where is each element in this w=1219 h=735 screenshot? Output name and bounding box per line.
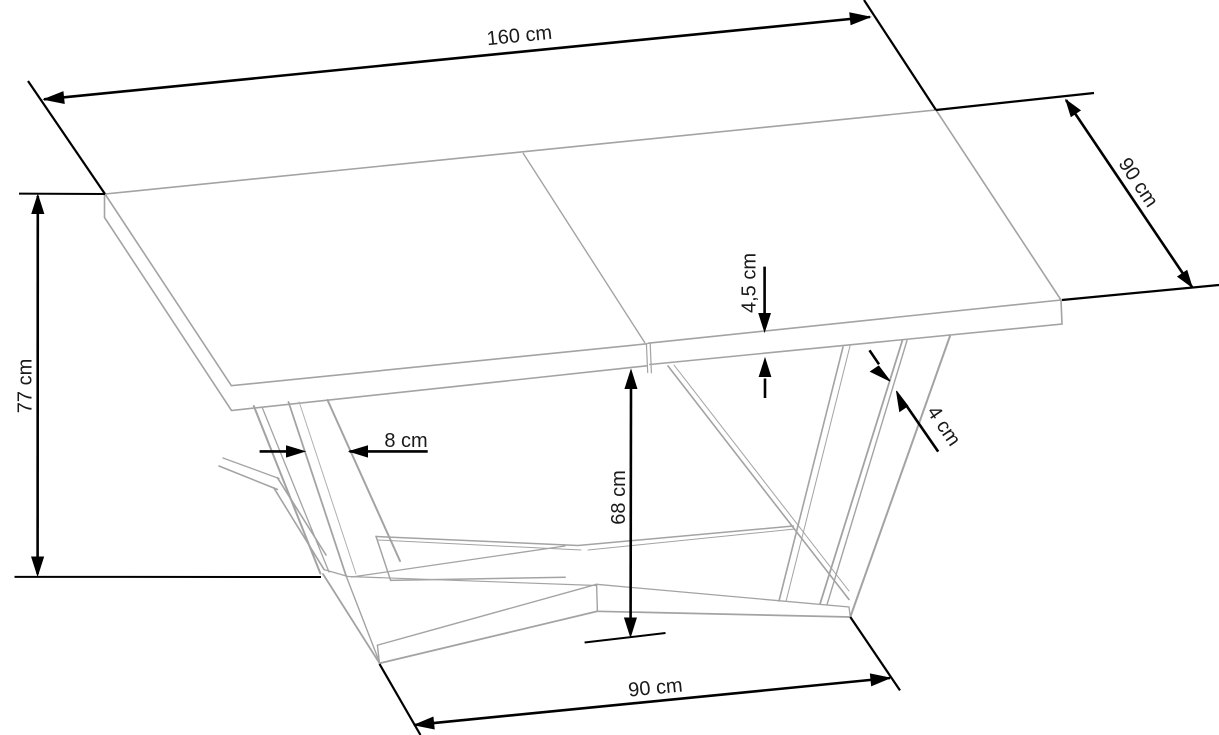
svg-text:4,5 cm: 4,5 cm (739, 253, 761, 313)
svg-text:8 cm: 8 cm (384, 430, 427, 452)
svg-text:68 cm: 68 cm (608, 470, 630, 524)
svg-text:77 cm: 77 cm (15, 359, 37, 413)
